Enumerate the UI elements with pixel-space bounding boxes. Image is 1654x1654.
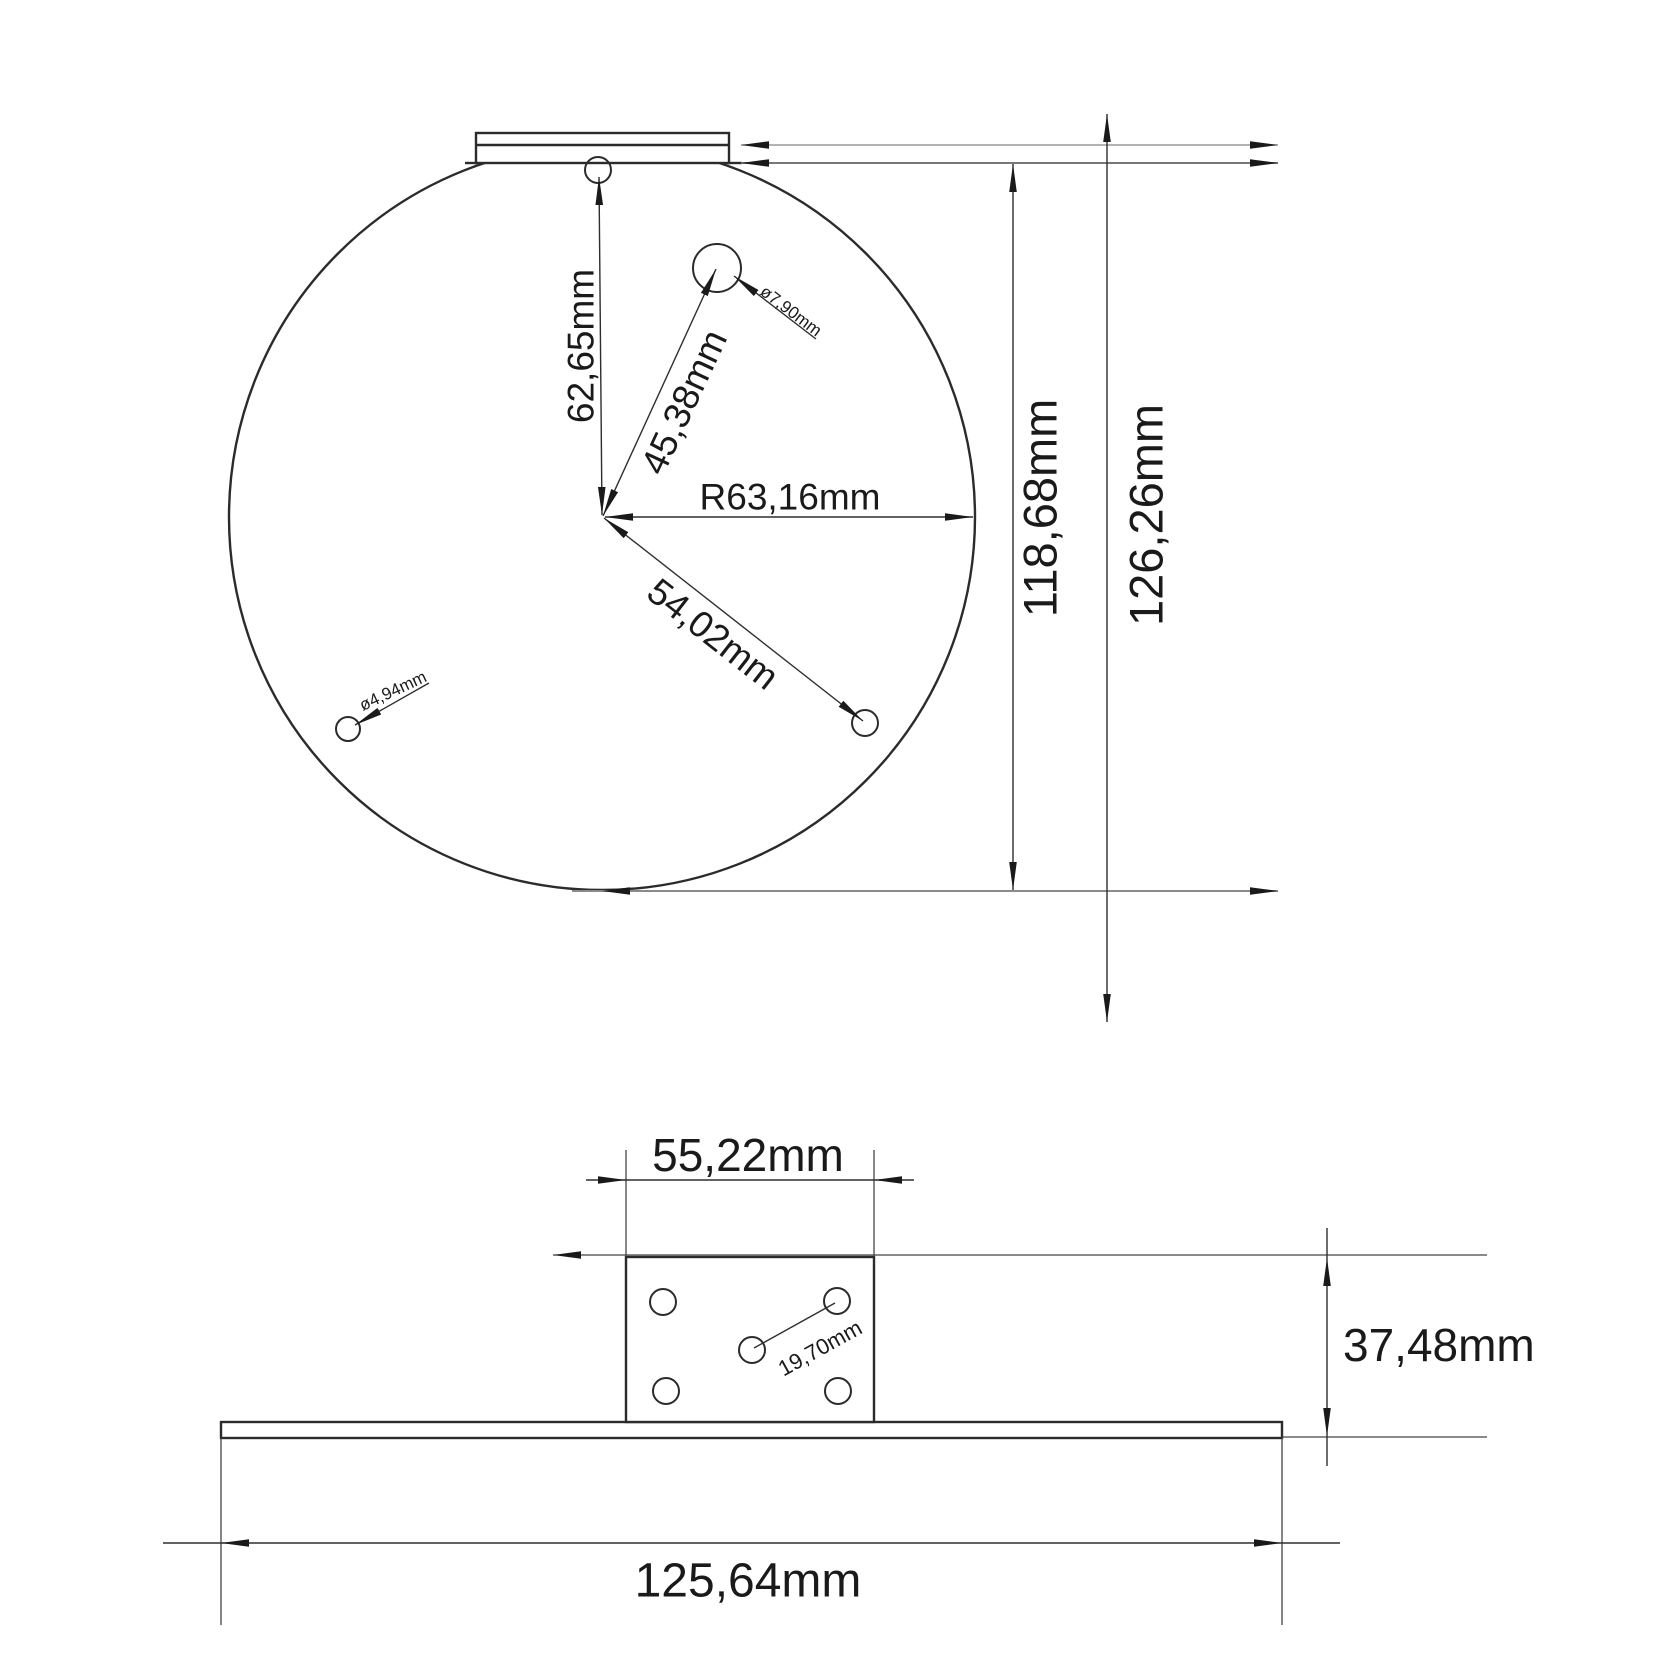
technical-drawing-page: 62,65mm 45,38mm R63,16mm 54,02mm ø7,90mm… — [0, 0, 1654, 1654]
dim-label-height-inner: 118,68mm — [1014, 399, 1067, 618]
dim-label-height-outer: 126,26mm — [1120, 404, 1173, 626]
top-view: 62,65mm 45,38mm R63,16mm 54,02mm ø7,90mm… — [229, 114, 1278, 1022]
dim-label-radius: R63,16mm — [700, 477, 881, 518]
bottom-view: 55,22mm 19,70mm 37,48mm 125,64mm — [163, 1129, 1535, 1625]
dim-label-37-48: 37,48mm — [1343, 1319, 1535, 1371]
dim-label-62-65: 62,65mm — [561, 269, 602, 423]
base-plate — [221, 1422, 1282, 1438]
dim-label-125-64: 125,64mm — [635, 1555, 862, 1608]
dim-label-55-22: 55,22mm — [652, 1129, 844, 1181]
drawing-canvas: 62,65mm 45,38mm R63,16mm 54,02mm ø7,90mm… — [0, 0, 1654, 1654]
